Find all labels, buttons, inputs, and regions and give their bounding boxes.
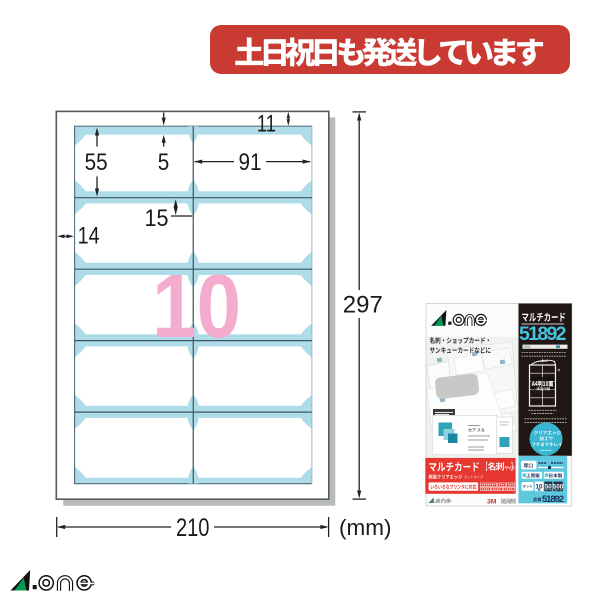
svg-text:15: 15 <box>145 205 169 232</box>
svg-text:50: 50 <box>545 483 552 490</box>
svg-text:91: 91 <box>239 149 262 176</box>
svg-text:51892: 51892 <box>519 323 567 345</box>
svg-text:210: 210 <box>176 514 210 542</box>
svg-text:55: 55 <box>85 149 108 176</box>
svg-text:3M: 3M <box>487 499 497 506</box>
svg-text:14: 14 <box>78 223 100 250</box>
svg-text:(mm): (mm) <box>339 515 391 540</box>
svg-text:297: 297 <box>343 292 383 319</box>
svg-text:500: 500 <box>553 483 564 490</box>
svg-text:51892: 51892 <box>542 494 564 505</box>
svg-text:5: 5 <box>158 149 170 176</box>
svg-text:11: 11 <box>257 111 276 138</box>
svg-text:10: 10 <box>152 257 241 357</box>
